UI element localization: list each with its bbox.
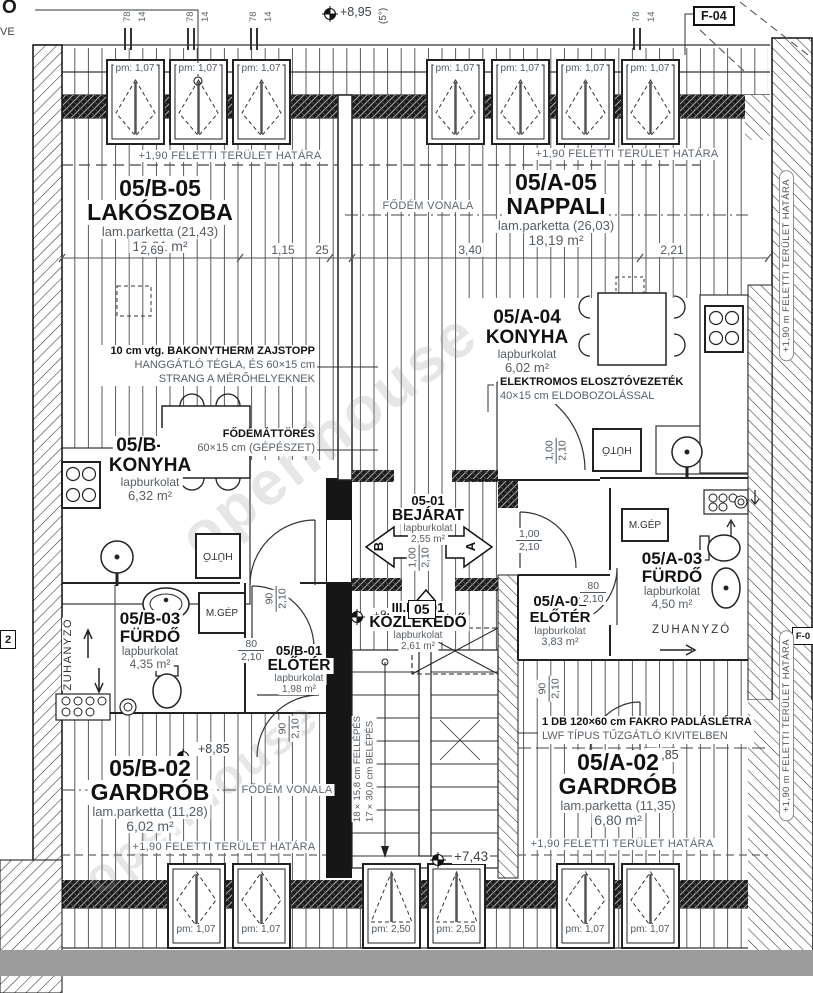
rafter-dim: 14 xyxy=(646,0,657,22)
bottom-gray-bar xyxy=(0,950,813,976)
room-label-05-b-01: 05/B-01 ELŐTÉR lapburkolat 1,98 m² xyxy=(265,644,334,695)
door-width: 1,00 xyxy=(516,528,542,540)
rafter-dim: 78 xyxy=(185,0,196,22)
door-height: 2,10 xyxy=(516,540,542,553)
dimension-text: 2,21 xyxy=(658,243,685,257)
room-area: 6,32 m² xyxy=(125,489,175,503)
unit-b-arrow-letter: B xyxy=(371,542,386,551)
shower-label-a: ZUHANYZÓ xyxy=(652,624,731,636)
window-label: pm: 1,07 xyxy=(499,63,542,74)
rafter-dim: 14 xyxy=(137,0,148,22)
unit-a-arrow-letter: A xyxy=(463,542,478,551)
room-area: 1,98 m² xyxy=(279,685,319,696)
corner-label: O xyxy=(2,0,17,19)
boundary-note-side-lower: +1,90 m FELETTI TERÜLET HATÁRA xyxy=(779,630,794,821)
room-area: 4,35 m² xyxy=(127,658,174,671)
door-height: 2,10 xyxy=(556,437,569,463)
door-height: 2,10 xyxy=(276,585,289,611)
room-label-05-a-03: 05/A-03 FÜRDŐ lapburkolat 4,50 m² xyxy=(639,550,705,611)
window-label: pm: 1,07 xyxy=(240,63,283,74)
room-name: FÜRDŐ xyxy=(639,568,705,586)
annotation-line: 1 DB 120×60 cm FAKRO PADLÁSLÉTRA xyxy=(540,716,754,730)
dimension-text: 1,15 xyxy=(269,243,296,257)
door-dim: 90 2,10 xyxy=(277,715,302,741)
door-dim: 1,00 2,10 xyxy=(516,528,542,553)
annotation-elektromos: ELEKTROMOS ELOSZTÓVEZETÉK 40×15 cm ELDOB… xyxy=(498,376,685,404)
rafter-dim: 78 xyxy=(631,0,642,22)
room-finish: lam.parketta (26,03) xyxy=(495,219,617,233)
door-width: 80 xyxy=(584,580,602,592)
fridge-box-a: HŰTŐ xyxy=(592,428,642,472)
room-area: 3,83 m² xyxy=(538,637,581,649)
level-roof: +8,95 xyxy=(340,5,372,19)
window-label: pm: 1,07 xyxy=(114,63,157,74)
mech-equipment-label: M.GÉP xyxy=(629,520,661,531)
sheet-code-badge: F-04 xyxy=(693,6,735,26)
boundary-note-side-upper: +1,90 m FELETTI TERÜLET HATÁRA xyxy=(779,170,794,361)
door-width: 1,00 xyxy=(407,544,419,570)
shower-label-b: ZUHANYZÓ xyxy=(62,618,74,691)
room-name: LAKÓSZOBA xyxy=(84,200,236,224)
window-label: pm: 2,50 xyxy=(370,924,413,935)
door-height: 2,10 xyxy=(289,715,302,741)
room-label-05-a-04: 05/A-04 KONYHA lapburkolat 6,02 m² xyxy=(483,308,571,375)
door-dim: 1,00 2,10 xyxy=(407,544,432,570)
fodem-vonala-bottom: FŐDÉM VONALA xyxy=(239,784,334,796)
window-label: pm: 1,07 xyxy=(240,924,283,935)
door-dim: 80 2,10 xyxy=(580,580,606,605)
room-area: 18,19 m² xyxy=(525,233,586,248)
door-width: 1,00 xyxy=(544,437,556,463)
stair-note-line: 18×15,8 cm FELLÉPÉS xyxy=(352,716,364,822)
room-id: 05/B-05 xyxy=(116,176,204,200)
level-gardrob-b: +8,85 xyxy=(196,742,232,756)
room-label-05-b-03: 05/B-03 FÜRDŐ lapburkolat 4,35 m² xyxy=(117,610,183,671)
room-name: BEJÁRAT xyxy=(389,508,467,524)
fridge-box-b: HŰTŐ xyxy=(195,533,241,579)
shower-b-arrows xyxy=(84,630,103,692)
window-label: pm: 1,07 xyxy=(175,924,218,935)
door-dim: 90 2,10 xyxy=(537,675,562,701)
mech-equipment-box-b: M.GÉP xyxy=(198,592,246,634)
rafter-dim: 14 xyxy=(263,0,274,22)
rafter-dim: 78 xyxy=(248,0,259,22)
room-id: 05/A-05 xyxy=(512,170,600,194)
axis-label-right: F-0 xyxy=(792,627,813,645)
room-label-05-b-05: 05/B-05 LAKÓSZOBA lam.parketta (21,43) 1… xyxy=(84,176,236,253)
room-id: 05/B-03 xyxy=(117,610,183,628)
room-id: 05/B-02 xyxy=(106,756,194,780)
stair-note: 18×15,8 cm FELLÉPÉS 17×30,0 cm BELÉPÉS xyxy=(352,716,377,822)
room-name: NAPPALI xyxy=(503,194,608,218)
corner-sublabel: VE xyxy=(0,26,15,38)
roof-angle: (5°) xyxy=(378,0,389,24)
fridge-label: HŰTŐ xyxy=(203,550,233,562)
room-area: 6,80 m² xyxy=(591,813,644,828)
fridge-label: HŰTŐ xyxy=(602,444,632,456)
room-finish: lam.parketta (11,35) xyxy=(557,799,678,813)
door-width: 80 xyxy=(242,638,260,650)
room-label-05-a-05: 05/A-05 NAPPALI lam.parketta (26,03) 18,… xyxy=(495,170,617,247)
room-area: 6,02 m² xyxy=(123,819,176,834)
annotation-line: LWF TÍPUS TŰZGÁTLÓ KIVITELBEN xyxy=(540,730,754,744)
boundary-note-top-right: +1,90 FELETTI TERÜLET HATÁRA xyxy=(534,148,721,160)
annotation-line: 60×15 cm (GÉPÉSZET) xyxy=(160,442,317,456)
door-height: 2,10 xyxy=(238,650,264,663)
annotation-line: STRANG A MÉRŐHELYEKNEK xyxy=(95,373,317,387)
room-name: KONYHA xyxy=(106,456,194,476)
room-name: ELŐTÉR xyxy=(527,610,594,626)
annotation-line: 10 cm vtg. BAKONYTHERM ZAJSTOPP xyxy=(95,345,317,359)
dimension-text: 3,40 xyxy=(456,243,483,257)
room-name: ELŐTÉR xyxy=(265,658,334,674)
window-label: pm: 1,07 xyxy=(629,924,672,935)
boundary-note-bottom-right: +1,90 FELETTI TERÜLET HATÁRA xyxy=(529,838,716,850)
room-id: 05/B-01 xyxy=(273,644,325,658)
annotation-fakro: 1 DB 120×60 cm FAKRO PADLÁSLÉTRA LWF TÍP… xyxy=(540,716,754,744)
boundary-note-top-left: +1,90 FELETTI TERÜLET HATÁRA xyxy=(137,150,324,162)
fodem-vonala-top: FŐDÉM VONALA xyxy=(380,200,475,212)
mech-equipment-box-a: M.GÉP xyxy=(621,508,669,542)
window-label: pm: 1,07 xyxy=(564,63,607,74)
room-area: 2,61 m² xyxy=(398,642,438,653)
room-id: 05/A-04 xyxy=(490,308,564,328)
rafter-dim: 14 xyxy=(200,0,211,22)
floorplan-canvas: openhouse openhouse O VE F-04 2 F-0 +8,9… xyxy=(0,0,813,993)
room-finish: lam.parketta (11,28) xyxy=(89,805,210,819)
door-height: 2,10 xyxy=(580,592,606,605)
annotation-zajstopp: 10 cm vtg. BAKONYTHERM ZAJSTOPP HANGGÁTL… xyxy=(95,345,317,386)
annotation-line: HANGGÁTLÓ TÉGLA, ÉS 60×15 cm xyxy=(95,359,317,373)
boundary-note-bottom-left: +1,90 FELETTI TERÜLET HATÁRA xyxy=(131,841,318,853)
door-dim: 80 2,10 xyxy=(238,638,264,663)
room-name: GARDRÓB xyxy=(556,774,681,798)
door-dim: 1,00 2,10 xyxy=(544,437,569,463)
annotation-fodemattores: FŐDÉMÁTTÖRÉS 60×15 cm (GÉPÉSZET) xyxy=(160,428,317,456)
room-id: 05/A-02 xyxy=(574,750,662,774)
room-label-05-01-bejarat: 05-01 BEJÁRAT lapburkolat 2,55 m² xyxy=(389,494,467,545)
door-width: 90 xyxy=(537,680,549,698)
dimension-text: 2,69 xyxy=(138,243,165,257)
window-label: pm: 1,07 xyxy=(177,63,220,74)
door-width: 90 xyxy=(277,720,289,738)
annotation-line: 40×15 cm ELDOBOZOLÁSSAL xyxy=(498,390,685,404)
room-id: 05-01 xyxy=(408,494,447,508)
rafter-ticks xyxy=(125,28,640,50)
room-name: FÜRDŐ xyxy=(117,628,183,646)
axis-label-left: 2 xyxy=(0,630,16,649)
annotation-line: FŐDÉMÁTTÖRÉS xyxy=(160,428,317,442)
stair-flight-number: 05 xyxy=(408,600,436,619)
window-label: pm: 2,50 xyxy=(435,924,478,935)
room-name: KONYHA xyxy=(483,328,571,348)
room-finish: lam.parketta (21,43) xyxy=(99,225,221,239)
dimension-text: 25 xyxy=(313,243,330,257)
door-width: 90 xyxy=(264,590,276,608)
room-area: 4,50 m² xyxy=(649,598,696,611)
room-id: 05/A-03 xyxy=(639,550,705,568)
mech-equipment-label: M.GÉP xyxy=(206,608,238,619)
level-stair: +7,43 xyxy=(452,849,490,864)
room-label-05-b-02: 05/B-02 GARDRÓB lam.parketta (11,28) 6,0… xyxy=(88,756,213,833)
window-label: pm: 1,07 xyxy=(629,63,672,74)
window-label: pm: 1,07 xyxy=(564,924,607,935)
stair-note-line: 17×30,0 cm BELÉPÉS xyxy=(364,716,376,822)
room-label-05-a-02: 05/A-02 GARDRÓB lam.parketta (11,35) 6,8… xyxy=(556,750,681,827)
annotation-line: ELEKTROMOS ELOSZTÓVEZETÉK xyxy=(498,376,685,390)
door-height: 2,10 xyxy=(549,675,562,701)
window-label: pm: 1,07 xyxy=(434,63,477,74)
room-name: GARDRÓB xyxy=(88,780,213,804)
rafter-dim: 78 xyxy=(122,0,133,22)
room-area: 6,02 m² xyxy=(502,361,552,375)
door-height: 2,10 xyxy=(419,544,432,570)
door-dim: 90 2,10 xyxy=(264,585,289,611)
